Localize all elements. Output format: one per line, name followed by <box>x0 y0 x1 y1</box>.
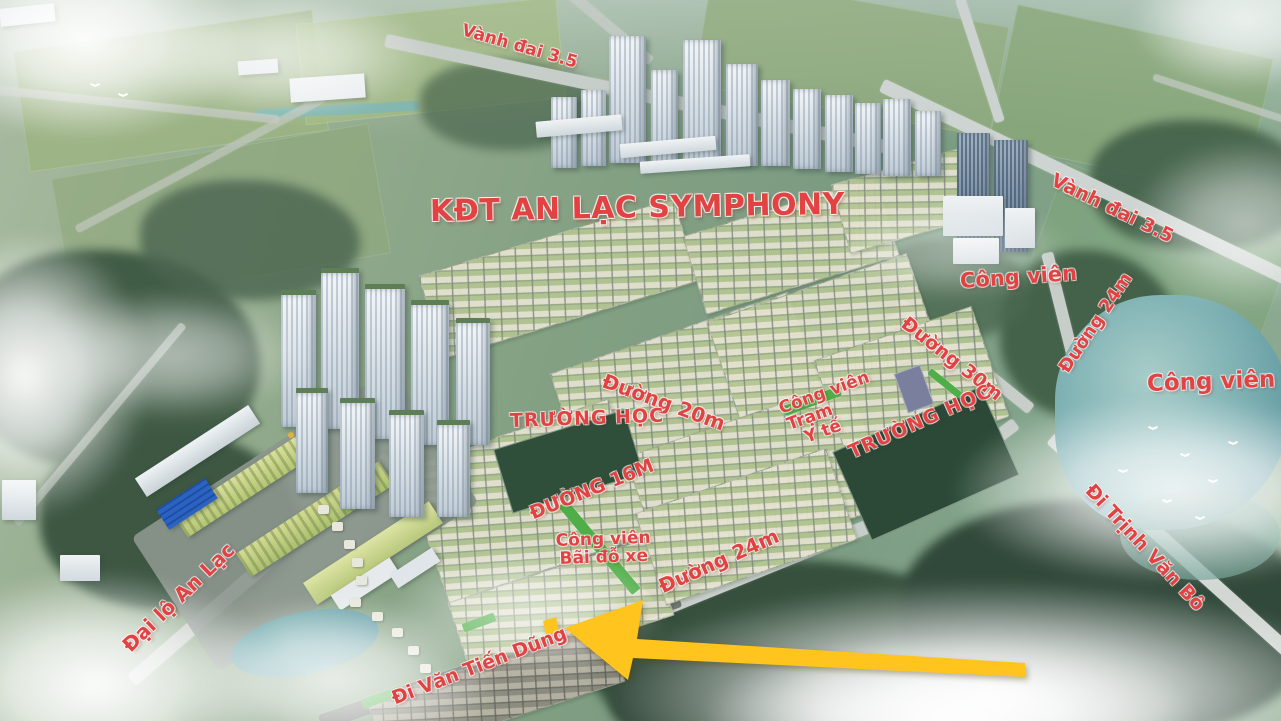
location-arrow-shape <box>565 600 1026 680</box>
aerial-masterplan-render: Vành đai 3.5 KĐT AN LẠC SYMPHONY Vành đa… <box>0 0 1281 721</box>
location-arrow <box>0 0 1281 721</box>
label-park-parking-group: Công viên Bãi đỗ xe <box>555 530 651 569</box>
project-title: KĐT AN LẠC SYMPHONY <box>430 189 845 228</box>
label-park-parking-line2: Bãi đỗ xe <box>556 548 652 569</box>
label-park-lake: Công viên <box>1147 368 1276 397</box>
